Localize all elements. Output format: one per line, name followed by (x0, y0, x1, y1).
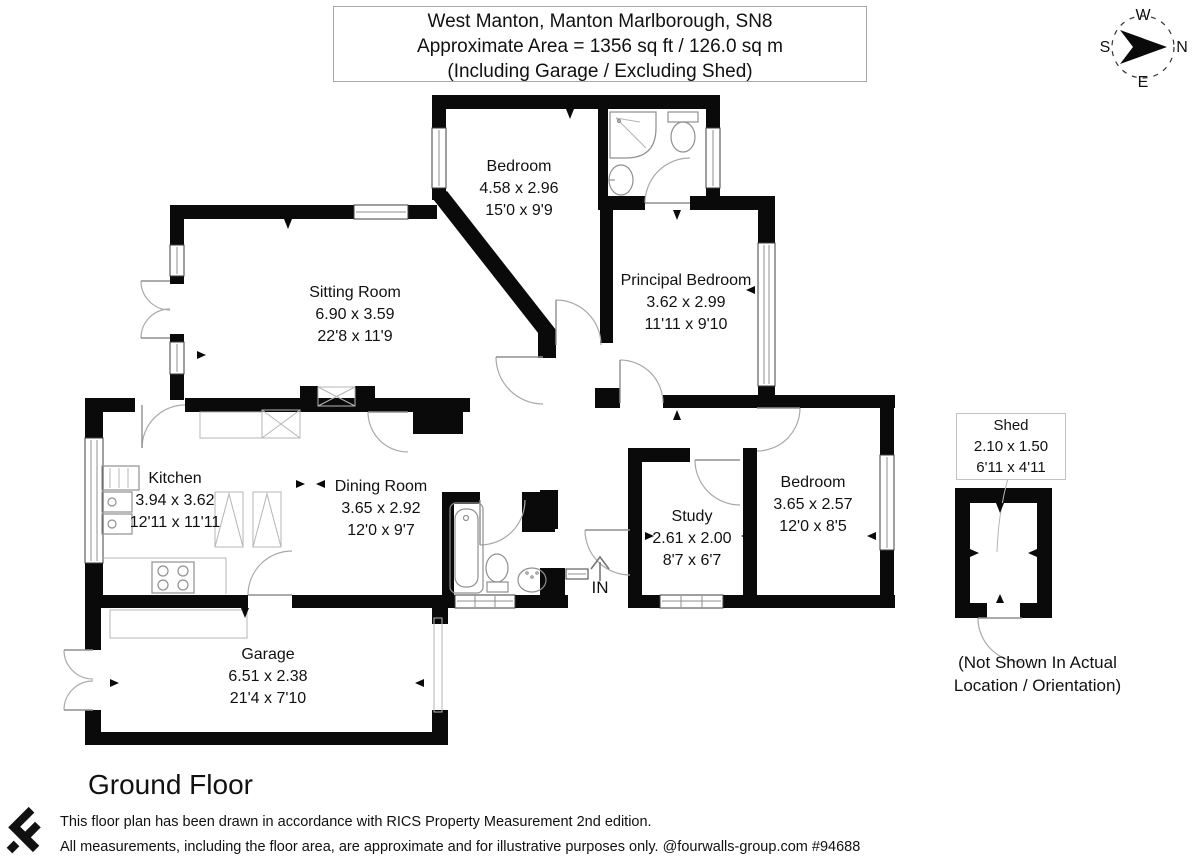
entrance-label: IN (575, 578, 625, 598)
measurements-disclaimer: All measurements, including the floor ar… (60, 839, 860, 855)
room-name: Kitchen (85, 468, 265, 490)
room-label-principal-bedroom: Principal Bedroom 3.62 x 2.99 11'11 x 9'… (596, 270, 776, 336)
compass-needle-icon (1120, 30, 1167, 64)
room-dims-imperial: 12'11 x 11'11 (85, 512, 265, 534)
room-dims-metric: 2.10 x 1.50 (957, 436, 1065, 457)
compass-north: N (1176, 39, 1188, 56)
compass-west: W (1135, 7, 1151, 24)
hob-icon (152, 562, 194, 593)
toilet-cistern-icon (668, 112, 698, 122)
room-dims-metric: 3.65 x 2.92 (291, 498, 471, 520)
room-name: Shed (957, 415, 1065, 436)
room-dims-metric: 3.62 x 2.99 (596, 292, 776, 314)
floorplan-page: West Manton, Manton Marlborough, SN8 App… (0, 0, 1200, 861)
room-dims-metric: 6.90 x 3.59 (265, 304, 445, 326)
toilet-icon (671, 122, 695, 152)
room-label-dining-room: Dining Room 3.65 x 2.92 12'0 x 9'7 (291, 476, 471, 542)
room-name: Bedroom (723, 472, 903, 494)
room-dims-imperial: 8'7 x 6'7 (602, 550, 782, 572)
room-dims-imperial: 21'4 x 7'10 (178, 688, 358, 710)
room-dims-imperial: 12'0 x 9'7 (291, 520, 471, 542)
room-label-bedroom-top: Bedroom 4.58 x 2.96 15'0 x 9'9 (429, 156, 609, 222)
title-box: West Manton, Manton Marlborough, SN8 App… (333, 6, 867, 82)
room-dims-imperial: 12'0 x 8'5 (723, 516, 903, 538)
fourwalls-logo-icon (0, 800, 60, 861)
doors (64, 158, 1022, 710)
compass-south: S (1100, 39, 1111, 56)
rics-disclaimer: This floor plan has been drawn in accord… (60, 814, 652, 830)
shed-label-box: Shed 2.10 x 1.50 6'11 x 4'11 (956, 413, 1066, 480)
shed-note: (Not Shown In Actual Location / Orientat… (930, 651, 1145, 697)
room-dims-metric: 4.58 x 2.96 (429, 178, 609, 200)
room-name: Dining Room (291, 476, 471, 498)
garage-bench-icon (110, 610, 247, 638)
room-label-bedroom-right: Bedroom 3.65 x 2.57 12'0 x 8'5 (723, 472, 903, 538)
area-qualifier: (Including Garage / Excluding Shed) (334, 59, 866, 84)
room-name: Bedroom (429, 156, 609, 178)
room-label-kitchen: Kitchen 3.94 x 3.62 12'11 x 11'11 (85, 468, 265, 534)
room-dims-imperial: 22'8 x 11'9 (265, 326, 445, 348)
room-label-sitting-room: Sitting Room 6.90 x 3.59 22'8 x 11'9 (265, 282, 445, 348)
room-dims-metric: 6.51 x 2.38 (178, 666, 358, 688)
room-dims-metric: 3.94 x 3.62 (85, 490, 265, 512)
room-dims-imperial: 11'11 x 9'10 (596, 314, 776, 336)
room-dims-metric: 3.65 x 2.57 (723, 494, 903, 516)
room-dims-imperial: 15'0 x 9'9 (429, 200, 609, 222)
floor-title: Ground Floor (88, 769, 253, 801)
room-name: Sitting Room (265, 282, 445, 304)
room-label-garage: Garage 6.51 x 2.38 21'4 x 7'10 (178, 644, 358, 710)
toilet-icon (486, 554, 508, 582)
property-address: West Manton, Manton Marlborough, SN8 (334, 9, 866, 34)
compass-rose: W S N E (1090, 0, 1200, 100)
approximate-area: Approximate Area = 1356 sq ft / 126.0 sq… (334, 34, 866, 59)
compass-east: E (1138, 74, 1149, 91)
room-dims-imperial: 6'11 x 4'11 (957, 457, 1065, 478)
room-name: Garage (178, 644, 358, 666)
room-name: Principal Bedroom (596, 270, 776, 292)
